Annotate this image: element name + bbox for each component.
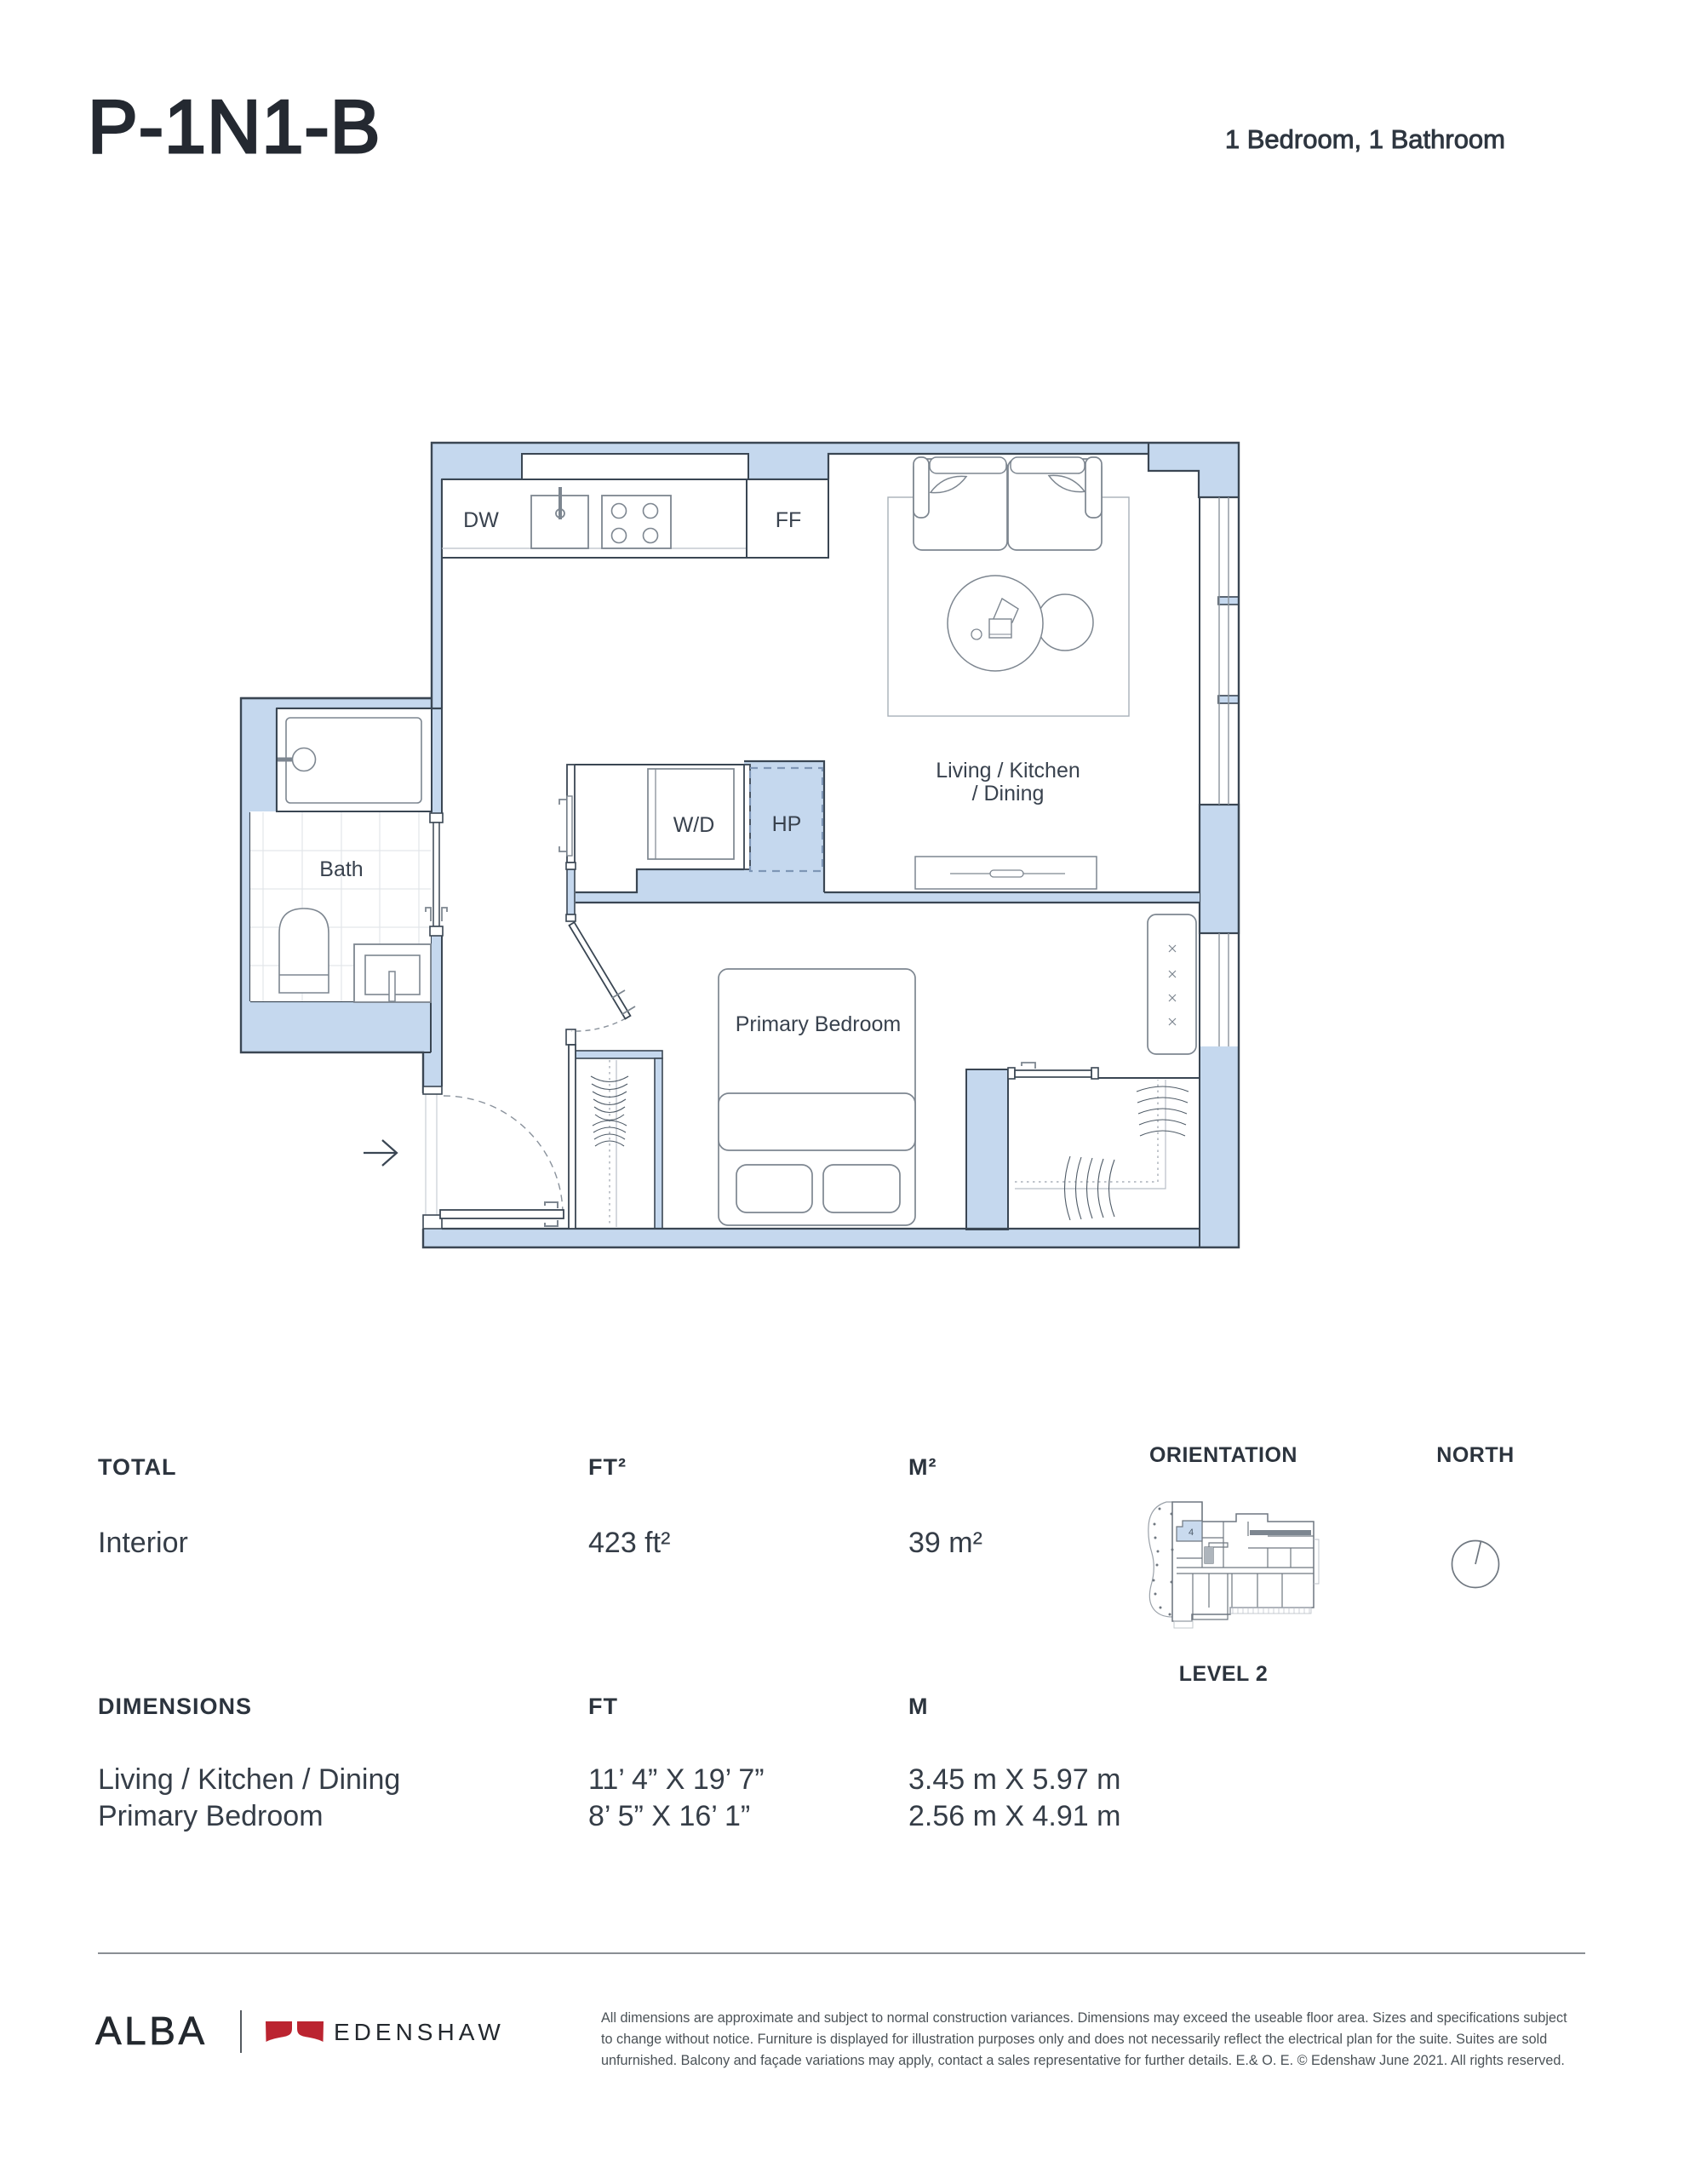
svg-text:1 Bedroom, 1 Bathroom: 1 Bedroom, 1 Bathroom [1225, 124, 1505, 154]
svg-text:LEVEL 2: LEVEL 2 [1179, 1662, 1268, 1686]
svg-text:TOTAL: TOTAL [98, 1454, 177, 1480]
svg-text:Primary Bedroom: Primary Bedroom [736, 1012, 902, 1036]
svg-text:P-1N1-B: P-1N1-B [88, 84, 381, 169]
svg-text:Interior: Interior [98, 1527, 188, 1559]
svg-text:All dimensions are approximate: All dimensions are approximate and subje… [601, 2010, 1567, 2026]
svg-text:M²: M² [908, 1454, 937, 1480]
svg-text:FT²: FT² [588, 1454, 627, 1480]
svg-text:M: M [908, 1694, 929, 1719]
svg-text:4: 4 [1189, 1528, 1194, 1538]
svg-text:EDENSHAW: EDENSHAW [334, 2019, 505, 2045]
svg-text:11’ 4” X 19’ 7”: 11’ 4” X 19’ 7” [588, 1763, 765, 1796]
svg-text:ORIENTATION: ORIENTATION [1149, 1443, 1297, 1467]
svg-text:HP: HP [772, 812, 802, 836]
svg-text:8’ 5” X 16’ 1”: 8’ 5” X 16’ 1” [588, 1800, 750, 1832]
svg-text:Living / Kitchen: Living / Kitchen [936, 759, 1080, 782]
svg-text:W/D: W/D [673, 813, 715, 837]
svg-text:FF: FF [776, 508, 802, 532]
svg-text:ALBA: ALBA [95, 2009, 208, 2053]
svg-text:3.45 m X 5.97 m: 3.45 m X 5.97 m [908, 1763, 1120, 1796]
svg-text:423 ft²: 423 ft² [588, 1527, 670, 1559]
svg-text:Living / Kitchen / Dining: Living / Kitchen / Dining [98, 1763, 400, 1796]
svg-text:DW: DW [463, 508, 499, 532]
svg-text:Bath: Bath [319, 857, 363, 881]
svg-text:unfurnished. Balcony and façad: unfurnished. Balcony and façade variatio… [601, 2053, 1565, 2068]
svg-text:Primary Bedroom: Primary Bedroom [98, 1800, 324, 1832]
svg-text:NORTH: NORTH [1436, 1443, 1514, 1467]
svg-text:/ Dining: / Dining [972, 782, 1045, 805]
svg-text:FT: FT [588, 1694, 618, 1719]
svg-text:39 m²: 39 m² [908, 1527, 982, 1559]
svg-text:2.56 m X 4.91 m: 2.56 m X 4.91 m [908, 1800, 1120, 1832]
svg-text:to change without notice. Furn: to change without notice. Furniture is d… [601, 2032, 1547, 2047]
svg-text:DIMENSIONS: DIMENSIONS [98, 1694, 252, 1719]
